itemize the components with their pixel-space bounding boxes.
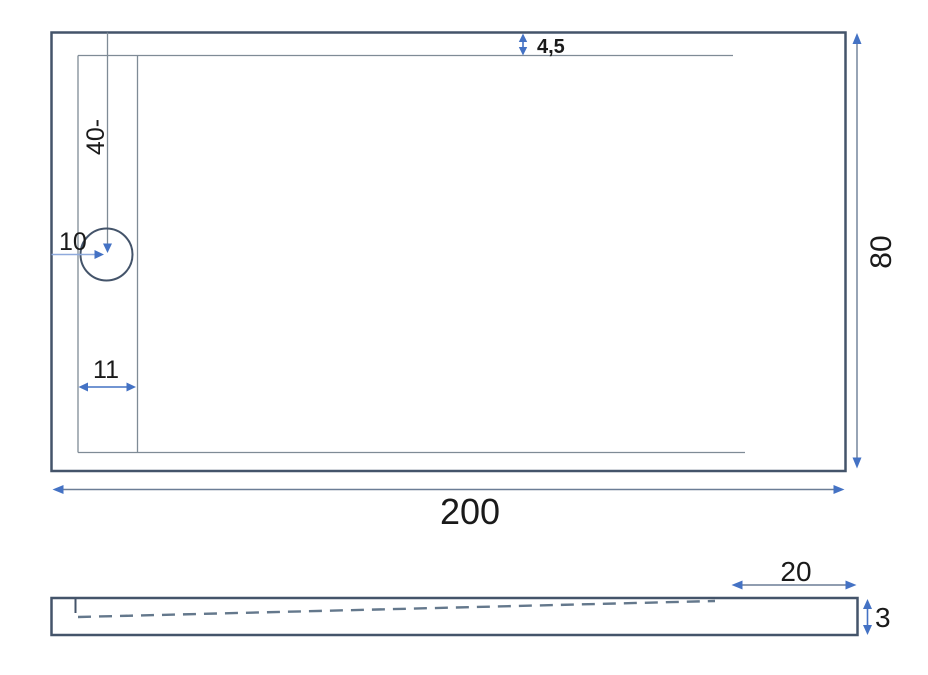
- side-view: 20 3: [52, 556, 891, 635]
- arrow-left-icon: [53, 485, 64, 494]
- shower-tray-drawing: 40- 10 4,5 11 80: [0, 0, 928, 675]
- profile-outline-rect: [52, 598, 858, 635]
- arrow-left-icon: [79, 383, 89, 392]
- drain-offset-dim-label: 40-: [82, 119, 110, 155]
- slope-dashed-line: [78, 601, 715, 617]
- arrow-down-icon: [863, 625, 872, 635]
- thickness-dim-label: 3: [875, 602, 891, 633]
- rim-gap-dim-label: 4,5: [537, 36, 565, 58]
- arrow-up-icon: [863, 599, 872, 609]
- arrow-up-icon: [519, 34, 527, 43]
- tray-outline-rect: [52, 33, 846, 472]
- arrow-right-icon: [127, 383, 137, 392]
- arrow-down-icon: [519, 47, 527, 56]
- flat-zone-dim-label: 20: [780, 556, 811, 587]
- channel-width-dim-label: 11: [93, 356, 119, 384]
- length-dim-label: 200: [440, 491, 500, 532]
- width-dim-label: 80: [865, 235, 898, 268]
- arrow-up-icon: [853, 33, 862, 44]
- arrow-right-icon: [95, 250, 105, 259]
- arrow-left-icon: [732, 581, 743, 590]
- arrow-down-icon: [853, 458, 862, 469]
- technical-drawing-canvas: 40- 10 4,5 11 80: [0, 0, 928, 675]
- drain-dim-label: 10: [59, 228, 87, 256]
- top-view: 40- 10 4,5 11 80: [52, 33, 899, 533]
- arrow-right-icon: [846, 581, 857, 590]
- arrow-right-icon: [834, 485, 845, 494]
- arrow-down-icon: [103, 244, 112, 254]
